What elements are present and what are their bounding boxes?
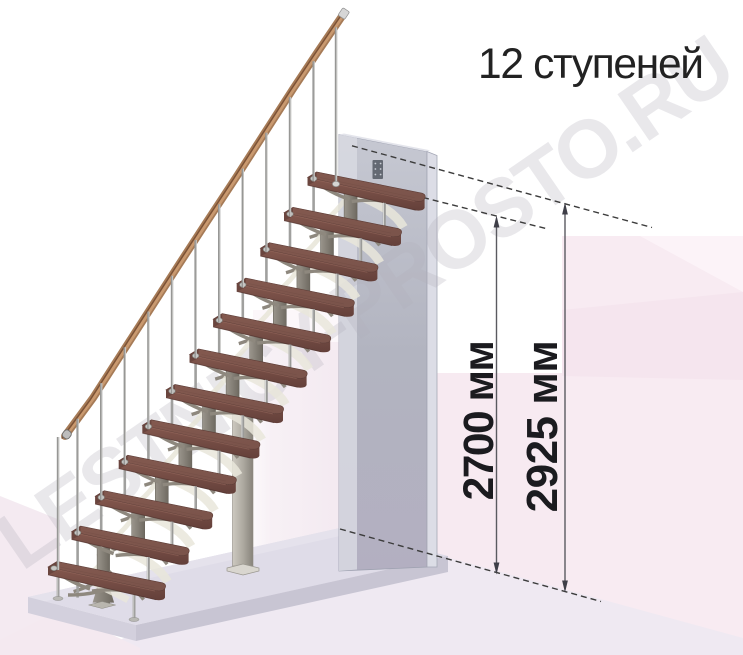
svg-text:12 ступеней: 12 ступеней [478,41,703,88]
svg-text:2925 мм: 2925 мм [518,341,567,513]
svg-text:2700 мм: 2700 мм [456,342,503,501]
